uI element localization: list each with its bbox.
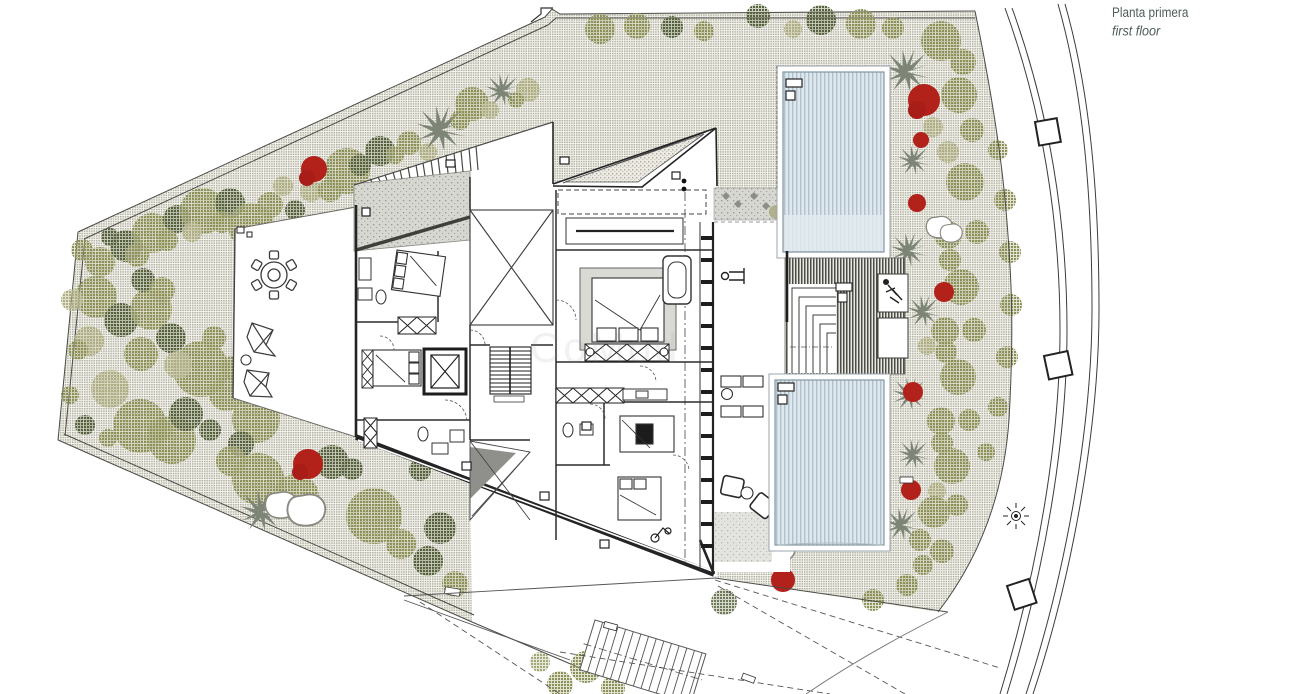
svg-text:first floor: first floor (1112, 23, 1161, 39)
svg-text:Planta primera: Planta primera (1112, 4, 1189, 20)
svg-text:CoMod: CoMod (530, 324, 680, 371)
